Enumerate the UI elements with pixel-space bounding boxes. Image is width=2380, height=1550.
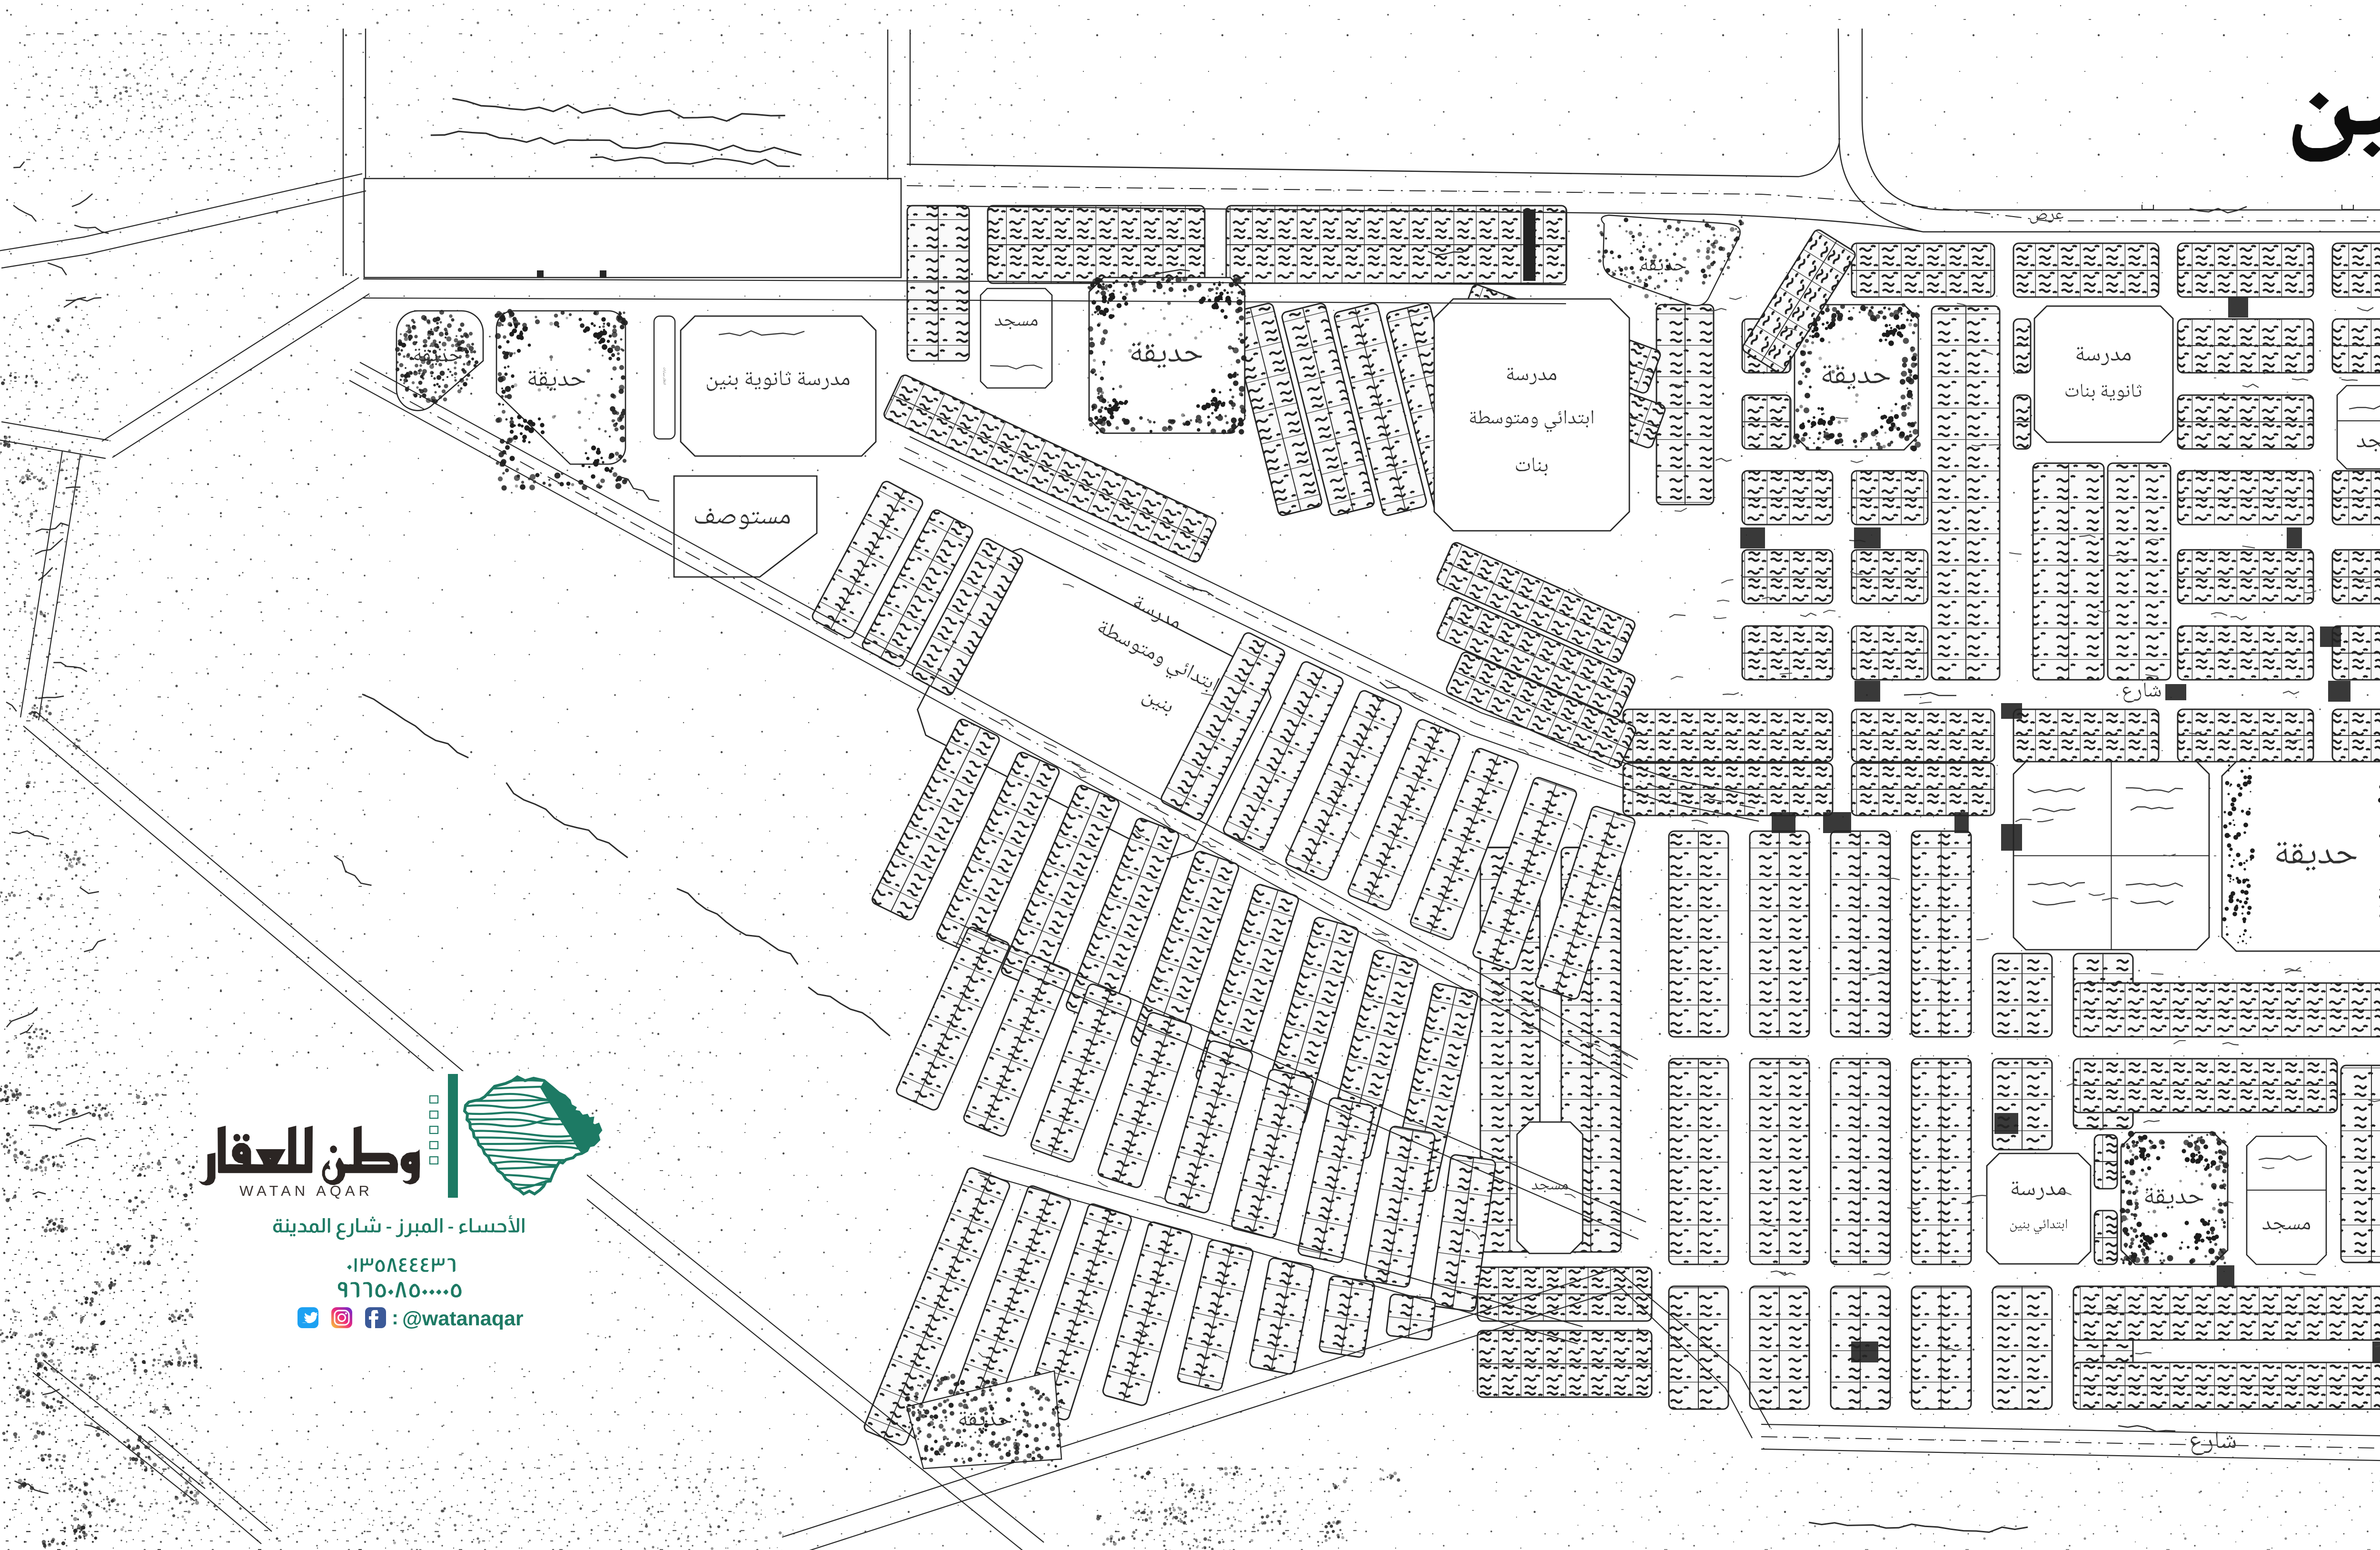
svg-text::: : bbox=[392, 1306, 398, 1329]
svg-text:@watanaqar: @watanaqar bbox=[402, 1307, 524, 1330]
svg-text:WATAN AQAR: WATAN AQAR bbox=[239, 1182, 373, 1199]
